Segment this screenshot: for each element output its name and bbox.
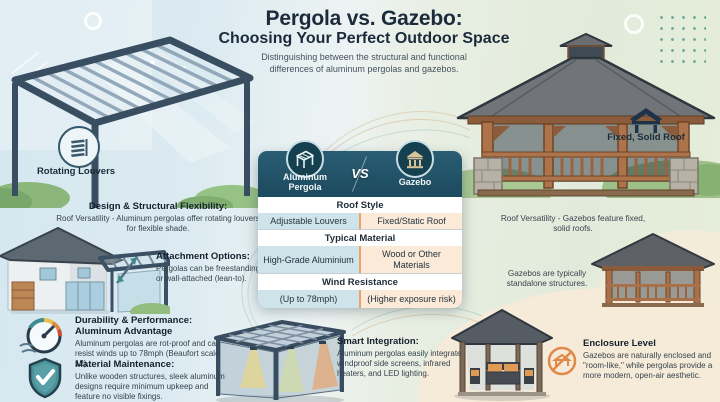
smart-integration-heading: Smart Integration: bbox=[337, 337, 467, 348]
pergola-material-value: High-Grade Aluminium bbox=[258, 246, 359, 273]
standalone-body: Gazebos are typically standalone structu… bbox=[494, 269, 600, 290]
title-block: Pergola vs. Gazebo: Choosing Your Perfec… bbox=[205, 7, 523, 75]
comparison-card: Aluminum Pergola VS Gazebo Roof Style Ad… bbox=[258, 151, 462, 304]
row-header-wind: Wind Resistance bbox=[258, 274, 462, 290]
gauge-icon bbox=[18, 314, 66, 360]
subtitle: Distinguishing between the structural an… bbox=[239, 52, 489, 75]
no-enclosure-icon bbox=[546, 345, 578, 377]
gazebo-material-value: Wood or Other Materials bbox=[361, 246, 462, 273]
standalone-gazebo-illustration bbox=[586, 226, 720, 310]
maintenance-body: Unlike wooden structures, sleek aluminum… bbox=[75, 372, 235, 402]
row-header-roof-style: Roof Style bbox=[258, 197, 462, 213]
attachment-note: Attachment Options: Pergolas can be free… bbox=[156, 252, 262, 284]
vs-label: VS bbox=[344, 166, 376, 181]
maintenance-note: Material Maintenance: Unlike wooden stru… bbox=[75, 360, 235, 402]
enclosure-heading: Enclosure Level bbox=[583, 339, 717, 350]
enclosure-body: Gazebos are naturally enclosed and "room… bbox=[583, 351, 717, 381]
design-flexibility-heading: Design & Structural Flexibility: bbox=[52, 202, 264, 213]
maintenance-heading: Material Maintenance: bbox=[75, 360, 235, 371]
infographic-canvas: Pergola vs. Gazebo: Choosing Your Perfec… bbox=[0, 0, 720, 402]
table-row: High-Grade Aluminium Wood or Other Mater… bbox=[258, 246, 462, 273]
gazebo-roof-body: Roof Versatility - Gazebos feature fixed… bbox=[498, 214, 648, 235]
design-flexibility-body: Roof Versatility - Aluminum pergolas off… bbox=[52, 214, 264, 234]
standalone-note: Gazebos are typically standalone structu… bbox=[494, 268, 600, 290]
gazebo-icon bbox=[396, 140, 434, 178]
title-line1: Pergola vs. Gazebo: bbox=[205, 7, 523, 31]
table-row: Adjustable Louvers Fixed/Static Roof bbox=[258, 213, 462, 229]
attachment-body: Pergolas can be freestanding or wall-att… bbox=[156, 264, 262, 284]
design-flexibility-note: Design & Structural Flexibility: Roof Ve… bbox=[52, 202, 264, 234]
pergola-wind-value: (Up to 78mph) bbox=[258, 290, 359, 308]
smart-integration-note: Smart Integration: Aluminum pergolas eas… bbox=[337, 337, 467, 379]
fixed-roof-label: Fixed, Solid Roof bbox=[596, 133, 696, 144]
gazebo-column-label: Gazebo bbox=[380, 178, 450, 188]
comparison-body: Roof Style Adjustable Louvers Fixed/Stat… bbox=[258, 197, 462, 308]
attachment-heading: Attachment Options: bbox=[156, 252, 262, 263]
rotating-louvers-label: Rotating Louvers bbox=[28, 167, 124, 178]
house-attached-pergola-illustration bbox=[0, 222, 170, 314]
table-row: (Up to 78mph) (Higher exposure risk) bbox=[258, 290, 462, 308]
gazebo-roof-note: Roof Versatility - Gazebos feature fixed… bbox=[498, 213, 648, 235]
smart-integration-body: Aluminum pergolas easily integrate windp… bbox=[337, 349, 467, 379]
title-line2: Choosing Your Perfect Outdoor Space bbox=[205, 30, 523, 48]
gazebo-roof-value: Fixed/Static Roof bbox=[361, 213, 462, 229]
pergola-column-label: Aluminum Pergola bbox=[270, 173, 340, 193]
attach-icon bbox=[112, 253, 142, 287]
durability-heading-line2: Aluminum Advantage bbox=[75, 327, 231, 338]
row-header-material: Typical Material bbox=[258, 230, 462, 246]
comparison-header: Aluminum Pergola VS Gazebo bbox=[258, 151, 462, 197]
enclosure-note: Enclosure Level Gazebos are naturally en… bbox=[583, 339, 717, 381]
shield-check-icon bbox=[26, 357, 64, 399]
pergola-roof-value: Adjustable Louvers bbox=[258, 213, 359, 229]
gazebo-wind-value: (Higher exposure risk) bbox=[361, 290, 462, 308]
louvers-icon bbox=[58, 126, 100, 168]
fixed-roof-icon bbox=[627, 106, 665, 134]
